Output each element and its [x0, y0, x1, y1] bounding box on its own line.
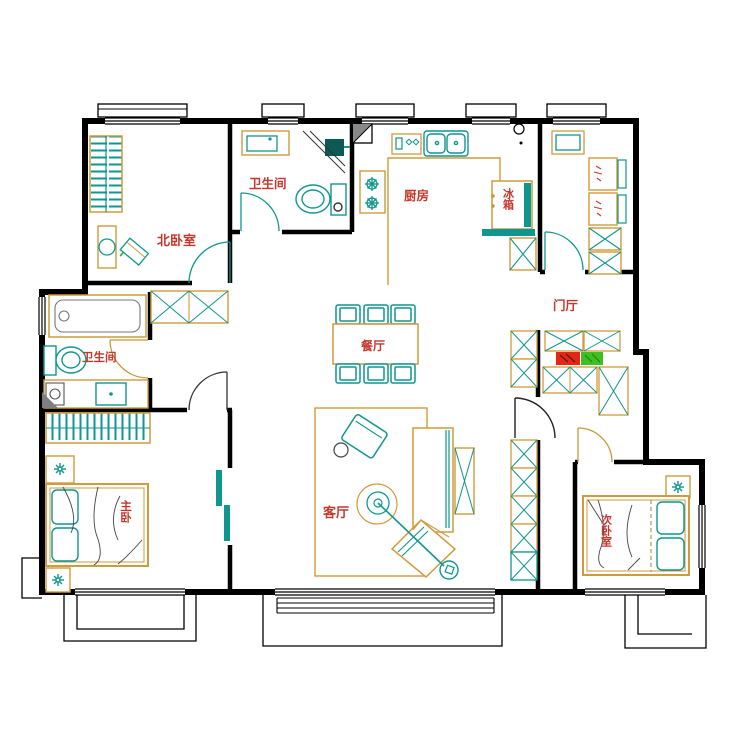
bathroom-west [42, 295, 150, 443]
window-master-bedroom [75, 588, 185, 596]
window-kitchen-left [356, 104, 414, 125]
door-entry-hall [515, 398, 555, 438]
dryer [589, 193, 626, 225]
nightstand [46, 456, 74, 483]
shoe-box-red [556, 352, 580, 365]
hall-cabinet-pair [543, 367, 597, 393]
sliding-door-master [216, 470, 230, 541]
room-label-second-bedroom: 次卧室 [600, 513, 613, 547]
dining-chair [364, 305, 388, 324]
sofa [392, 428, 455, 577]
room-label-dining: 餐厅 [361, 338, 385, 353]
room-label-north-bedroom: 北卧室 [157, 233, 196, 249]
nightstand [666, 476, 690, 498]
balcony-master-inner [77, 595, 184, 629]
fridge-label: 冰箱 [502, 187, 515, 211]
dining-chair [391, 305, 415, 324]
room-label-bathroom-west: 卫生间 [82, 350, 117, 364]
north-bedroom [90, 136, 148, 269]
balcony-living-window [277, 598, 494, 613]
room-label-living: 客厅 [323, 505, 349, 521]
corridor-wardrobe [151, 291, 228, 323]
bathroom-north [242, 131, 350, 215]
flue-duct [353, 124, 372, 143]
floor-plan-page: 冰箱 [0, 0, 740, 740]
dining-chair [391, 364, 415, 383]
window-laundry [547, 104, 606, 125]
dining-chair [336, 305, 360, 324]
window-north-bedroom [98, 104, 187, 125]
fridge-shelf [482, 229, 535, 236]
dining-chair [336, 364, 360, 383]
ceiling-lamp [514, 124, 524, 134]
door-second-bedroom [578, 428, 612, 462]
step-bottom-right-outer [625, 595, 706, 648]
double-sink [424, 131, 468, 156]
bathtub [49, 295, 146, 337]
floor-plan-canvas: 冰箱 [0, 0, 740, 740]
corner-chair [117, 238, 148, 269]
laundry-cabinets [589, 228, 621, 274]
side-stool [334, 443, 348, 457]
toilet-icon [44, 346, 86, 375]
desk [98, 226, 116, 268]
toilet-icon [296, 184, 346, 215]
round-rug [357, 484, 397, 524]
window-second-bedroom-east [699, 505, 707, 568]
step-bottom-right-inner [638, 595, 692, 634]
window-bathroom-north [262, 104, 304, 125]
door-bathroom-north [241, 193, 279, 231]
vanity-counter [42, 380, 148, 408]
kitchen: 冰箱 [353, 124, 536, 285]
room-label-kitchen: 厨房 [404, 188, 429, 203]
entry-hall [543, 331, 628, 415]
window-bathroom-west [38, 297, 46, 335]
cabinet-below-fridge [510, 238, 536, 270]
bed [46, 484, 148, 566]
prep-sink [392, 134, 421, 154]
shoe-box-green [581, 352, 603, 365]
window-kitchen-right [466, 104, 516, 125]
window-second-bedroom [585, 588, 665, 596]
dining-chair [364, 364, 388, 383]
washer [589, 158, 626, 190]
hall-cabinet-tall [599, 367, 628, 415]
water-heater [325, 139, 344, 156]
sofa-side-table [455, 448, 474, 514]
nightstand [46, 568, 70, 592]
window-seat [552, 131, 584, 154]
balcony-master [64, 595, 196, 641]
room-label-bathroom-north: 卫生间 [249, 176, 287, 191]
room-label-entry-hall: 门厅 [553, 298, 579, 313]
counter-edge [388, 158, 500, 285]
door-master-bedroom [189, 372, 227, 410]
door-laundry [545, 232, 583, 270]
master-bedroom [46, 456, 148, 592]
shoe-cabinet-row [545, 331, 620, 351]
wardrobe-column [511, 331, 537, 580]
room-label-master-bedroom: 主卧 [119, 499, 133, 523]
living-room [315, 408, 474, 579]
fridge: 冰箱 [491, 181, 532, 229]
window-living-room [275, 588, 495, 596]
laundry-room [552, 131, 626, 274]
